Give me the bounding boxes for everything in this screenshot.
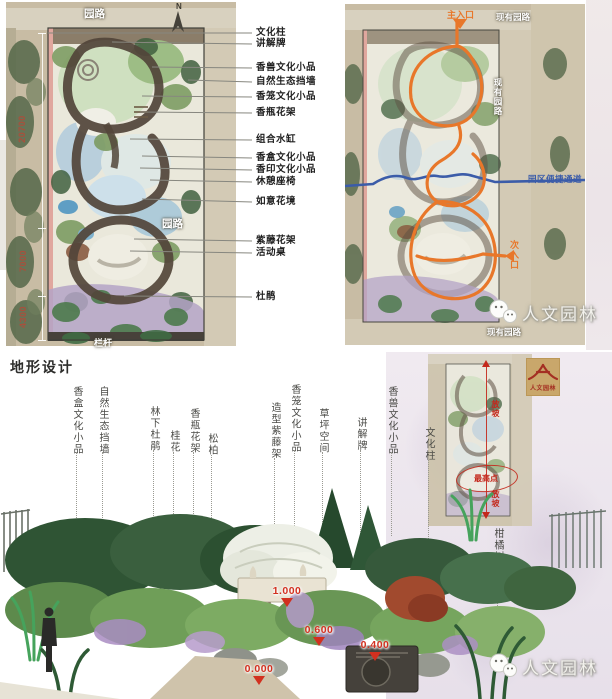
elevation-arrow-icon [281,598,293,613]
elevation-marker: 0.400 [353,639,397,667]
logo-symbol-icon [526,362,560,382]
section-title: 地形设计 [10,357,74,377]
callout-label: 文化柱 [256,28,286,38]
callout-label: 休憩座椅 [256,177,296,187]
terrain-label: 林下杜鹃 [148,406,159,452]
elevation-marker: 0.000 [237,663,281,691]
elevation-value: 0.000 [245,663,274,675]
callout-label: 活动桌 [256,248,286,258]
side-entrance-label: 次入口 [508,240,521,270]
terrain-label: 桂花 [168,430,179,453]
callout-label: 香印文化小品 [256,165,316,175]
inset-slope-top-label: 放坡 [490,400,501,418]
inset-arrow-up-icon [482,356,490,367]
callout-label: 杜鹃 [256,292,276,302]
callout-label: 香瓶花架 [256,108,296,118]
elevation-marker: 1.000 [265,585,309,613]
terrain-label: 草坪空间 [317,408,328,454]
callout-label: 自然生态挡墙 [256,77,316,87]
terrain-label: 文化柱 [423,427,434,462]
elevation-value: 1.000 [273,585,302,597]
watermark-top: 人文园林 [488,298,598,326]
terrain-label: 造型紫藤架 [269,402,280,460]
callout-label: 香盒文化小品 [256,153,316,163]
terrain-label: 自然生态挡墙 [97,386,108,455]
watermark-bottom: 人文园林 [488,652,598,680]
elevation-marker: 0.600 [297,624,341,652]
callout-label: 如意花境 [256,197,296,207]
callout-label: 香笼文化小品 [256,92,316,102]
elevation-arrow-icon [253,676,265,691]
terrain-label: 松柏 [206,433,217,456]
main-entrance-arrow-icon [453,19,467,36]
shortcut-path-label: 园区便捷通道 [528,173,582,185]
callout-label: 紫藤花架 [256,236,296,246]
watermark-text: 人文园林 [522,300,598,325]
terrain-label: 香兽文化小品 [386,386,397,455]
existing-road-label-right: 现有园路 [492,78,504,116]
terrain-label: 香笼文化小品 [289,384,300,453]
elevation-value: 0.600 [305,624,334,636]
existing-road-label-top: 现有园路 [496,11,530,23]
terrain-label: 香瓶花架 [188,408,199,454]
elevation-arrow-icon [313,637,325,652]
elevation-arrow-icon [369,652,381,667]
terrain-label: 香盒文化小品 [71,386,82,455]
terrain-label: 讲解牌 [355,417,366,452]
existing-road-label-bottom: 现有园路 [487,326,521,338]
callout-label: 组合水缸 [256,135,296,145]
elevation-value: 0.400 [361,639,390,651]
callout-label: 讲解牌 [256,39,286,49]
wechat-icon [488,652,518,680]
company-logo: 人文园林 [526,358,560,396]
logo-text: 人文园林 [530,383,556,392]
wechat-icon [488,298,518,326]
watermark-text: 人文园林 [522,654,598,679]
callout-label: 香兽文化小品 [256,63,316,73]
page: 园路 园路 栏杆 N 20700 7000 4300 文化柱 讲解牌 香兽文化小… [0,0,612,699]
